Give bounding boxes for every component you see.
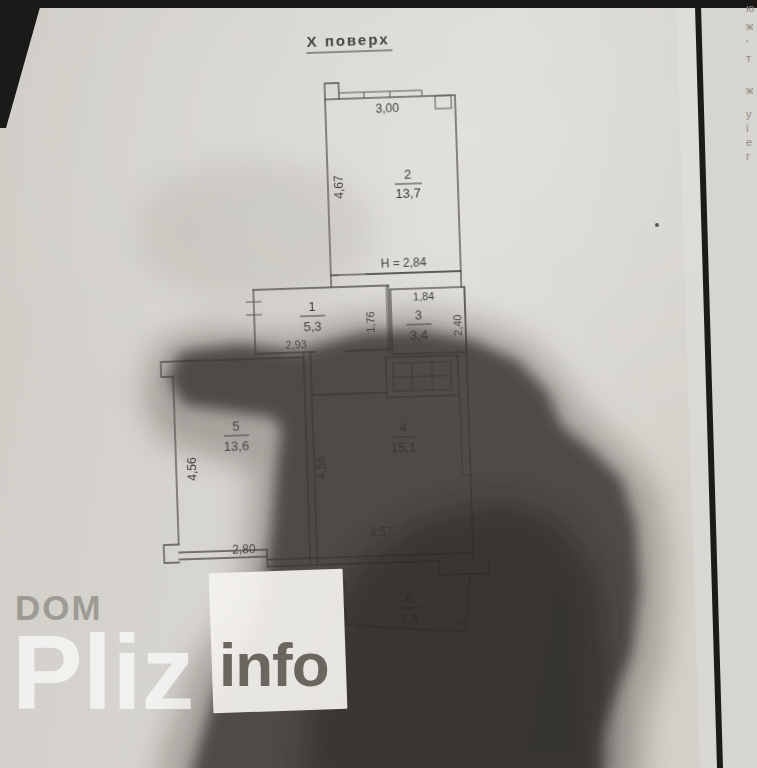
room-3-area: 3,4 [410, 327, 429, 343]
room-label-4: 4 15,1 [390, 420, 417, 456]
dim-room2-left: 4,67 [332, 175, 347, 199]
room-6-number: 6 [405, 591, 413, 606]
watermark-info: info [219, 634, 329, 696]
fraction-line [224, 435, 249, 436]
paper-speck [655, 223, 659, 227]
dim-room3-top: 1,84 [413, 290, 435, 303]
dim-room2-top: 3,00 [375, 101, 399, 116]
dim-room4-bottom: 3,57 [369, 524, 393, 539]
text-fragment: г [746, 150, 750, 162]
room-label-2: 2 13,7 [394, 166, 422, 201]
room-label-3: 3 3,4 [406, 307, 432, 343]
fraction-line [398, 608, 421, 609]
adjacent-page [699, 0, 757, 768]
text-fragment: е [746, 136, 752, 148]
dim-room1-right: 1,76 [364, 311, 377, 333]
page-title: Х поверх [306, 30, 393, 53]
dim-room3-right: 2,40 [451, 314, 464, 336]
room-2-area: 13,7 [395, 185, 421, 201]
room-5-area: 13,6 [224, 438, 250, 454]
dim-room4-left: 4,56 [314, 456, 329, 480]
page-title-text: Х поверх [306, 30, 390, 50]
fraction-line [300, 316, 325, 317]
corner-cut [0, 0, 42, 128]
room-1-number: 1 [308, 299, 316, 314]
floorplan-photo: Х поверх 3,00 4,67 2 [0, 0, 757, 768]
room-5-walls [158, 357, 311, 570]
dim-room1-bottom: 2,93 [285, 338, 307, 351]
ventilation-shaft-icon [386, 355, 459, 397]
page-edge-line [695, 6, 723, 768]
room-label-6: 6 3,4 [397, 591, 421, 627]
text-fragment: ю [746, 2, 754, 14]
text-fragment: т [746, 52, 751, 64]
text-fragment: і [746, 122, 748, 134]
room-6-area: 3,4 [400, 611, 419, 627]
title-underline [306, 50, 392, 53]
fraction-line [391, 437, 416, 438]
room-label-1: 1 5,3 [300, 299, 326, 335]
text-fragment: ж [746, 84, 753, 96]
room-4-area: 15,1 [391, 440, 417, 456]
room-4-number: 4 [399, 420, 407, 435]
dim-room5-bottom: 2,80 [232, 542, 256, 557]
fraction-line [407, 324, 432, 325]
room-1-area: 5,3 [303, 319, 322, 335]
text-fragment: ж [746, 20, 753, 32]
ceiling-height-note: Н = 2,84 [380, 255, 426, 271]
top-edge [0, 0, 757, 8]
watermark-pliz: Pliz [12, 619, 195, 725]
text-fragment: ' [746, 38, 748, 50]
dim-room5-left: 4,56 [185, 457, 200, 481]
room-3-number: 3 [414, 307, 422, 322]
page-crease [676, 0, 717, 768]
room-5-number: 5 [232, 418, 240, 433]
fraction-line [395, 183, 422, 184]
room-label-5: 5 13,6 [223, 418, 250, 454]
text-fragment: у [746, 108, 752, 120]
room-2-number: 2 [404, 167, 412, 182]
